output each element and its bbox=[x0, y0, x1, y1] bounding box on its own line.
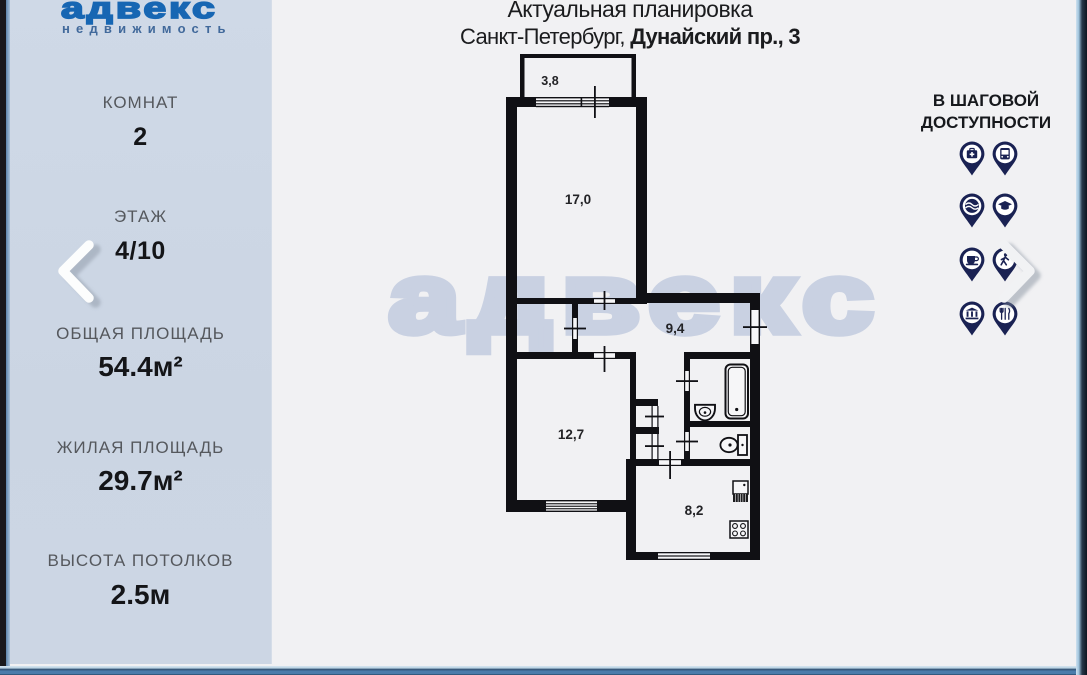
svg-text:8,2: 8,2 bbox=[685, 503, 704, 518]
svg-text:17,0: 17,0 bbox=[565, 192, 591, 207]
svg-text:9,4: 9,4 bbox=[666, 321, 685, 336]
svg-text:12,7: 12,7 bbox=[558, 427, 584, 442]
svg-text:3,8: 3,8 bbox=[541, 74, 558, 88]
